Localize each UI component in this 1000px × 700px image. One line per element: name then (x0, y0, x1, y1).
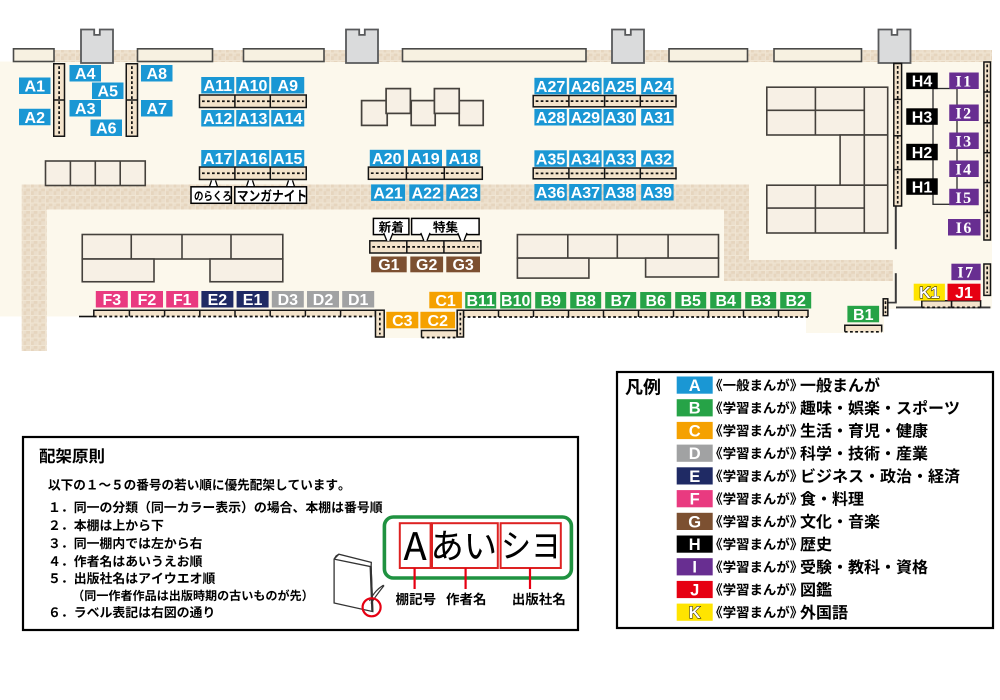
svg-text:G1: G1 (378, 257, 399, 274)
svg-text:A26: A26 (571, 79, 600, 96)
svg-text:A24: A24 (643, 79, 672, 96)
svg-text:J: J (690, 581, 699, 599)
svg-text:C2: C2 (428, 313, 449, 330)
svg-text:A5: A5 (98, 84, 119, 101)
svg-text:F1: F1 (173, 292, 192, 309)
svg-text:A13: A13 (238, 111, 267, 128)
svg-text:A4: A4 (75, 66, 96, 83)
svg-text:A27: A27 (536, 79, 565, 96)
svg-text:B11: B11 (466, 293, 495, 310)
svg-text:C: C (689, 422, 701, 440)
svg-text:A29: A29 (571, 110, 600, 127)
svg-text:A11: A11 (204, 78, 233, 95)
svg-text:B10: B10 (501, 293, 530, 310)
svg-text:A17: A17 (203, 151, 232, 168)
svg-text:I5: I5 (955, 190, 972, 207)
svg-text:A28: A28 (536, 110, 565, 127)
svg-text:G2: G2 (416, 257, 437, 274)
svg-text:D2: D2 (313, 292, 334, 309)
svg-text:D3: D3 (278, 292, 299, 309)
svg-text:A19: A19 (410, 151, 439, 168)
svg-text:E: E (689, 468, 700, 486)
svg-text:F2: F2 (138, 292, 157, 309)
svg-text:A34: A34 (571, 151, 600, 168)
svg-text:A6: A6 (96, 121, 117, 138)
svg-text:I3: I3 (955, 134, 972, 151)
svg-text:E1: E1 (243, 292, 263, 309)
svg-text:B4: B4 (715, 293, 736, 310)
svg-text:A21: A21 (373, 185, 402, 202)
svg-text:A14: A14 (273, 111, 302, 128)
svg-text:H2: H2 (912, 145, 933, 162)
svg-text:A31: A31 (643, 110, 672, 127)
svg-text:A20: A20 (372, 151, 401, 168)
svg-text:A32: A32 (643, 151, 672, 168)
svg-text:A18: A18 (449, 151, 478, 168)
svg-text:A9: A9 (278, 78, 299, 95)
svg-text:D: D (689, 445, 701, 463)
svg-text:I2: I2 (955, 106, 972, 123)
svg-text:H: H (689, 536, 701, 554)
svg-text:I: I (692, 559, 697, 577)
svg-text:A22: A22 (412, 185, 441, 202)
svg-text:K1: K1 (919, 285, 940, 302)
svg-text:A2: A2 (25, 110, 46, 127)
svg-text:K: K (689, 604, 701, 622)
svg-text:A37: A37 (571, 185, 600, 202)
svg-text:B1: B1 (853, 307, 874, 324)
svg-text:B2: B2 (785, 293, 806, 310)
svg-text:I1: I1 (955, 74, 972, 91)
svg-text:A7: A7 (147, 101, 168, 118)
svg-text:A30: A30 (605, 110, 634, 127)
svg-text:A25: A25 (605, 79, 634, 96)
svg-text:C3: C3 (392, 313, 413, 330)
svg-text:H1: H1 (912, 179, 933, 196)
svg-text:H3: H3 (912, 109, 933, 126)
svg-text:I4: I4 (955, 162, 972, 179)
svg-text:A12: A12 (203, 111, 232, 128)
svg-text:A33: A33 (605, 151, 634, 168)
svg-text:A23: A23 (449, 185, 478, 202)
svg-text:G: G (688, 513, 701, 531)
svg-text:B6: B6 (645, 293, 666, 310)
svg-text:E2: E2 (208, 292, 228, 309)
svg-text:A10: A10 (238, 78, 267, 95)
svg-text:C1: C1 (435, 293, 456, 310)
svg-text:H4: H4 (912, 74, 933, 91)
svg-text:A16: A16 (238, 151, 267, 168)
svg-text:A39: A39 (643, 185, 672, 202)
svg-text:I6: I6 (956, 220, 973, 237)
svg-text:A36: A36 (536, 185, 565, 202)
svg-text:G3: G3 (452, 257, 473, 274)
svg-text:J1: J1 (955, 285, 973, 302)
svg-text:B: B (689, 400, 701, 418)
svg-text:B9: B9 (540, 293, 561, 310)
svg-text:I7: I7 (957, 265, 974, 282)
svg-text:A8: A8 (147, 66, 168, 83)
svg-text:B5: B5 (680, 293, 701, 310)
svg-text:D1: D1 (348, 292, 369, 309)
svg-text:B3: B3 (750, 293, 771, 310)
svg-text:A38: A38 (605, 185, 634, 202)
svg-text:A1: A1 (25, 79, 46, 96)
svg-text:A3: A3 (75, 101, 96, 118)
svg-text:B7: B7 (610, 293, 631, 310)
svg-text:A: A (689, 377, 701, 395)
svg-text:F3: F3 (102, 292, 121, 309)
svg-text:A15: A15 (273, 151, 302, 168)
svg-text:F: F (690, 491, 700, 509)
svg-text:A35: A35 (536, 151, 565, 168)
svg-text:B8: B8 (575, 293, 596, 310)
